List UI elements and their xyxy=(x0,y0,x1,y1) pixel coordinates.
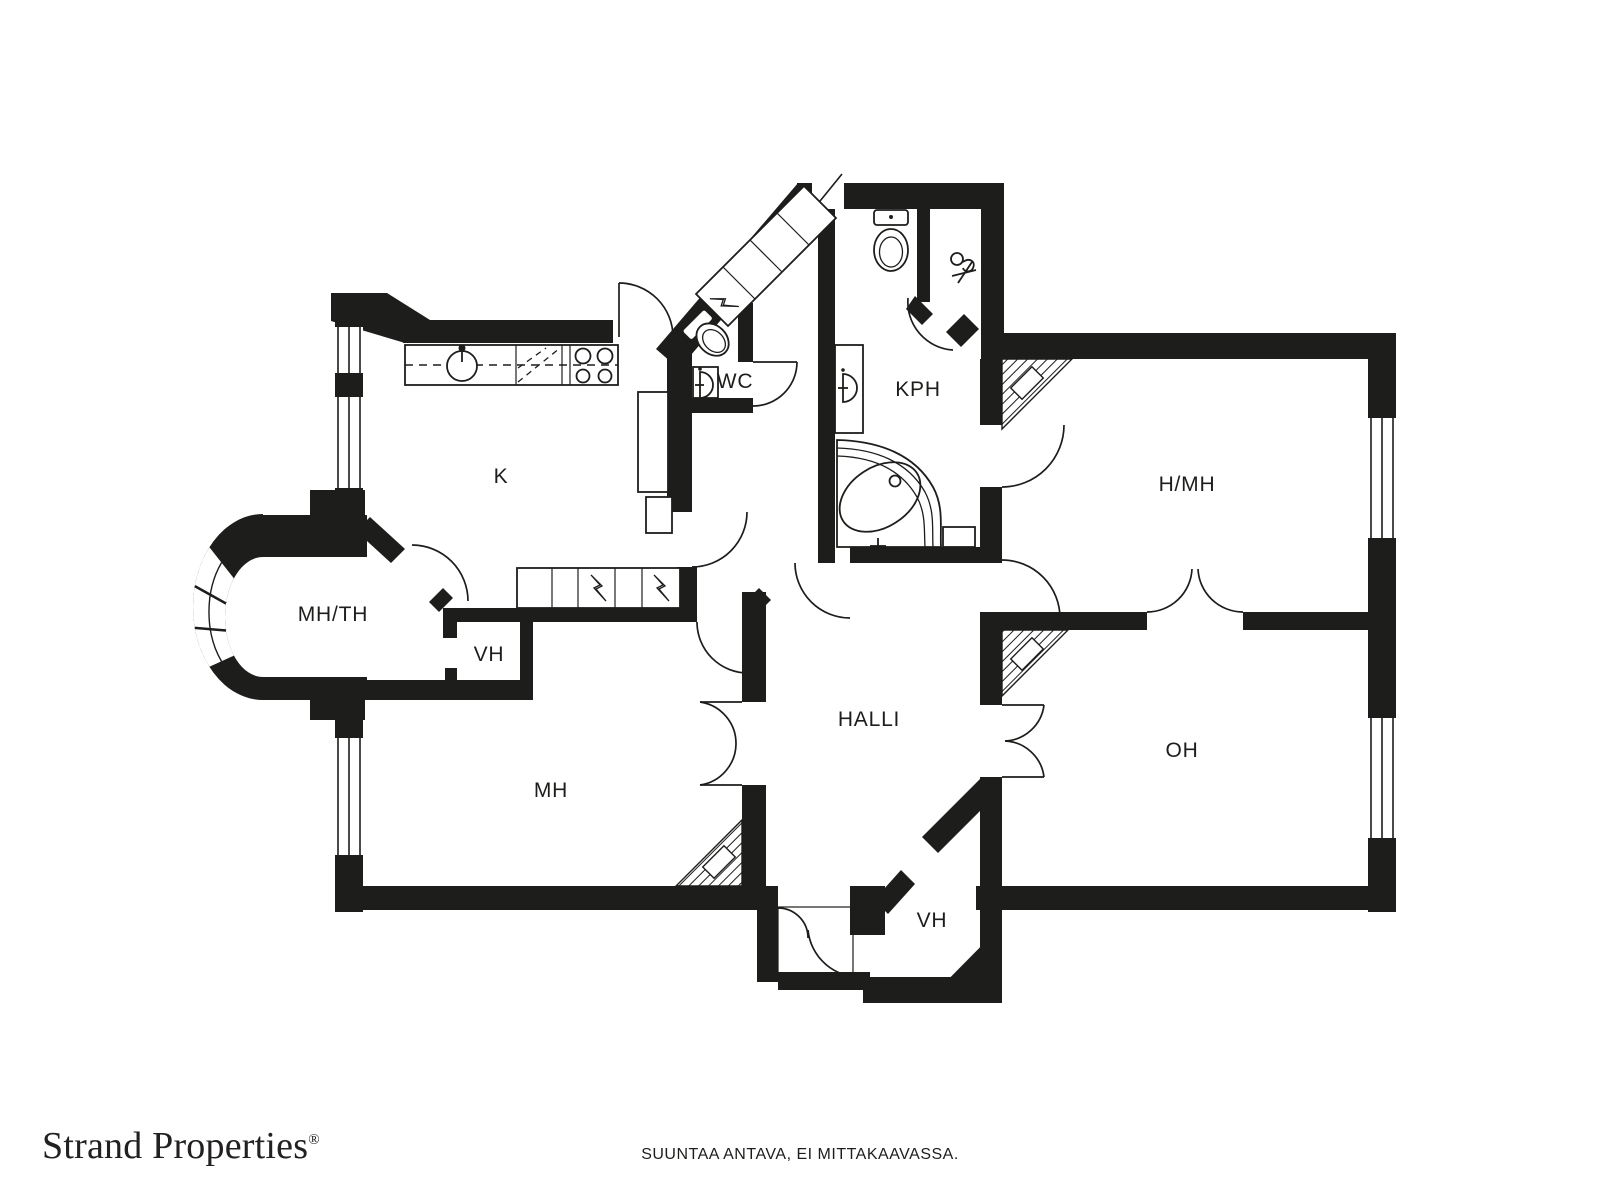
wall-segment xyxy=(300,680,533,700)
window xyxy=(335,738,363,855)
walls xyxy=(193,183,1396,1003)
wall-segment xyxy=(980,487,1002,553)
wall-segment xyxy=(261,515,367,557)
kitchen-cabinets xyxy=(517,568,680,608)
entrance-double-door xyxy=(778,907,862,977)
wall-segment xyxy=(946,314,979,347)
wall-segment xyxy=(981,183,1004,359)
entry-wardrobe xyxy=(696,186,836,326)
cabinet xyxy=(943,527,975,547)
door-arc xyxy=(1002,560,1060,618)
disclaimer-text: SUUNTAA ANTAVA, EI MITTAKAAVASSA. xyxy=(0,1146,1600,1164)
wall-segment xyxy=(980,359,1002,425)
wall-segment xyxy=(403,320,613,343)
room-label-mhth: MH/TH xyxy=(298,603,369,626)
door-arc xyxy=(1002,425,1064,487)
floorplan-page: K WC KPH H/MH MH/TH VH MH HALLI OH VH St… xyxy=(0,0,1600,1200)
wall-segment xyxy=(335,886,778,910)
washbasin-icon xyxy=(835,345,863,433)
windows xyxy=(193,174,1396,855)
window xyxy=(1368,418,1396,538)
window xyxy=(1368,718,1396,838)
wall-segment xyxy=(445,668,457,682)
wall-segment xyxy=(690,398,753,413)
room-label-kph: KPH xyxy=(895,378,941,401)
wall-segment xyxy=(667,343,692,512)
room-label-vh-upper: VH xyxy=(474,643,505,666)
tile-stove-icon xyxy=(1002,359,1072,429)
wall-segment xyxy=(818,209,835,563)
toilet-icon xyxy=(874,210,908,271)
wall-segment xyxy=(742,592,766,702)
refrigerator-icon xyxy=(638,392,668,492)
double-door-arc xyxy=(1147,569,1243,612)
wall-segment xyxy=(757,886,778,982)
room-label-wc: WC xyxy=(717,370,754,393)
room-label-halli: HALLI xyxy=(838,708,900,731)
wall-segment xyxy=(742,785,766,888)
double-door-arc xyxy=(1002,705,1044,777)
door-arc xyxy=(795,563,850,618)
wall-segment xyxy=(1243,612,1368,630)
double-door-arc xyxy=(700,702,742,785)
wall-segment xyxy=(981,333,1396,359)
door-arc xyxy=(692,512,747,567)
kitchen-counter xyxy=(405,345,618,385)
door-arc xyxy=(619,283,673,337)
bathtub-icon xyxy=(827,440,941,553)
tile-stove-icon xyxy=(676,820,742,886)
room-label-oh: OH xyxy=(1165,739,1198,762)
room-label-k: K xyxy=(494,465,509,488)
wall-segment xyxy=(850,547,1002,563)
washbasin-icon xyxy=(693,367,718,398)
room-label-hmh: H/MH xyxy=(1159,473,1216,496)
floorplan-drawing: K WC KPH H/MH MH/TH VH MH HALLI OH VH xyxy=(0,0,1600,1200)
wall-segment xyxy=(1002,612,1147,630)
cabinet xyxy=(646,497,672,533)
wall-segment xyxy=(976,886,1396,910)
window xyxy=(335,327,363,373)
door-arc xyxy=(753,362,797,406)
wall-segment xyxy=(917,207,930,302)
room-label-vh-lower: VH xyxy=(917,909,948,932)
tile-stove-icon xyxy=(1002,630,1068,696)
door-arc xyxy=(697,622,748,673)
wall-segment xyxy=(850,886,885,935)
hand-shower-icon xyxy=(951,253,976,283)
wall-segment xyxy=(980,612,1002,705)
wall-segment xyxy=(443,622,457,638)
room-label-mh: MH xyxy=(534,779,568,802)
wall-segment xyxy=(443,608,697,622)
window xyxy=(335,397,363,488)
